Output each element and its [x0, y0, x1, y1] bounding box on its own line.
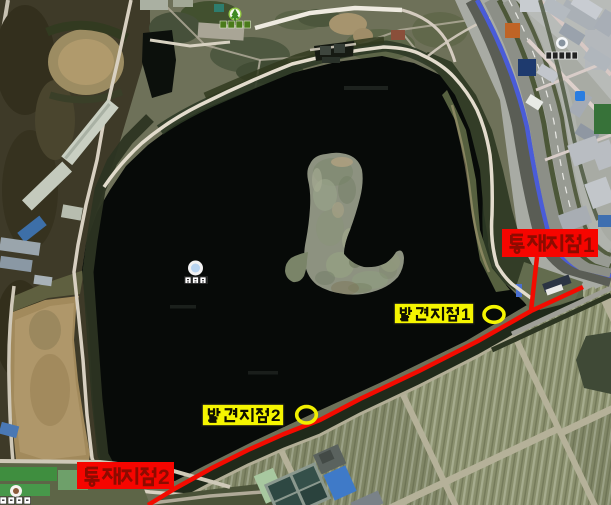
svg-text:2: 2 [158, 466, 170, 489]
svg-text:1: 1 [461, 305, 470, 324]
svg-text:1: 1 [583, 234, 595, 257]
svg-text:2: 2 [271, 406, 280, 425]
